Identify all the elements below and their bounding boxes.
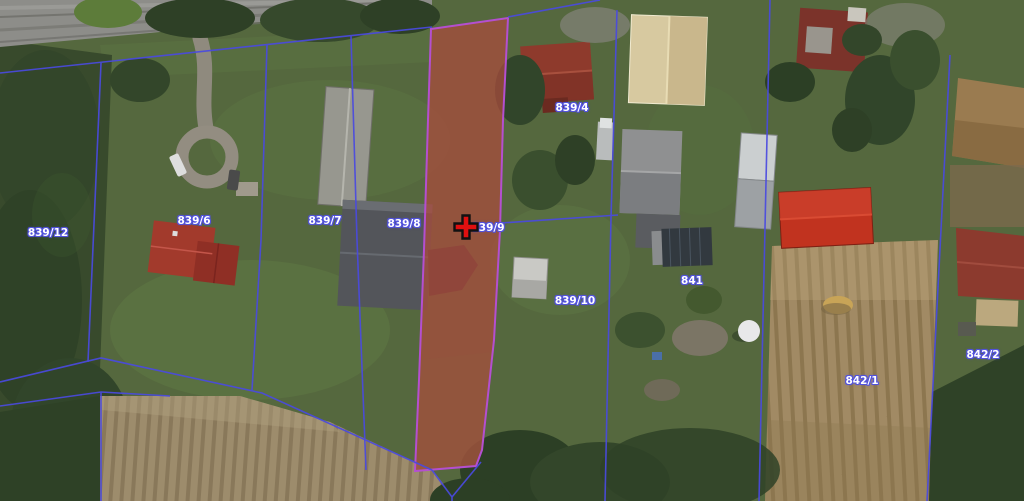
map-canvas[interactable]: 839/12839/6839/7839/8839/9839/4839/10841… [0, 0, 1024, 501]
aerial-imagery [0, 0, 1024, 501]
plowed-field-right [765, 240, 938, 501]
